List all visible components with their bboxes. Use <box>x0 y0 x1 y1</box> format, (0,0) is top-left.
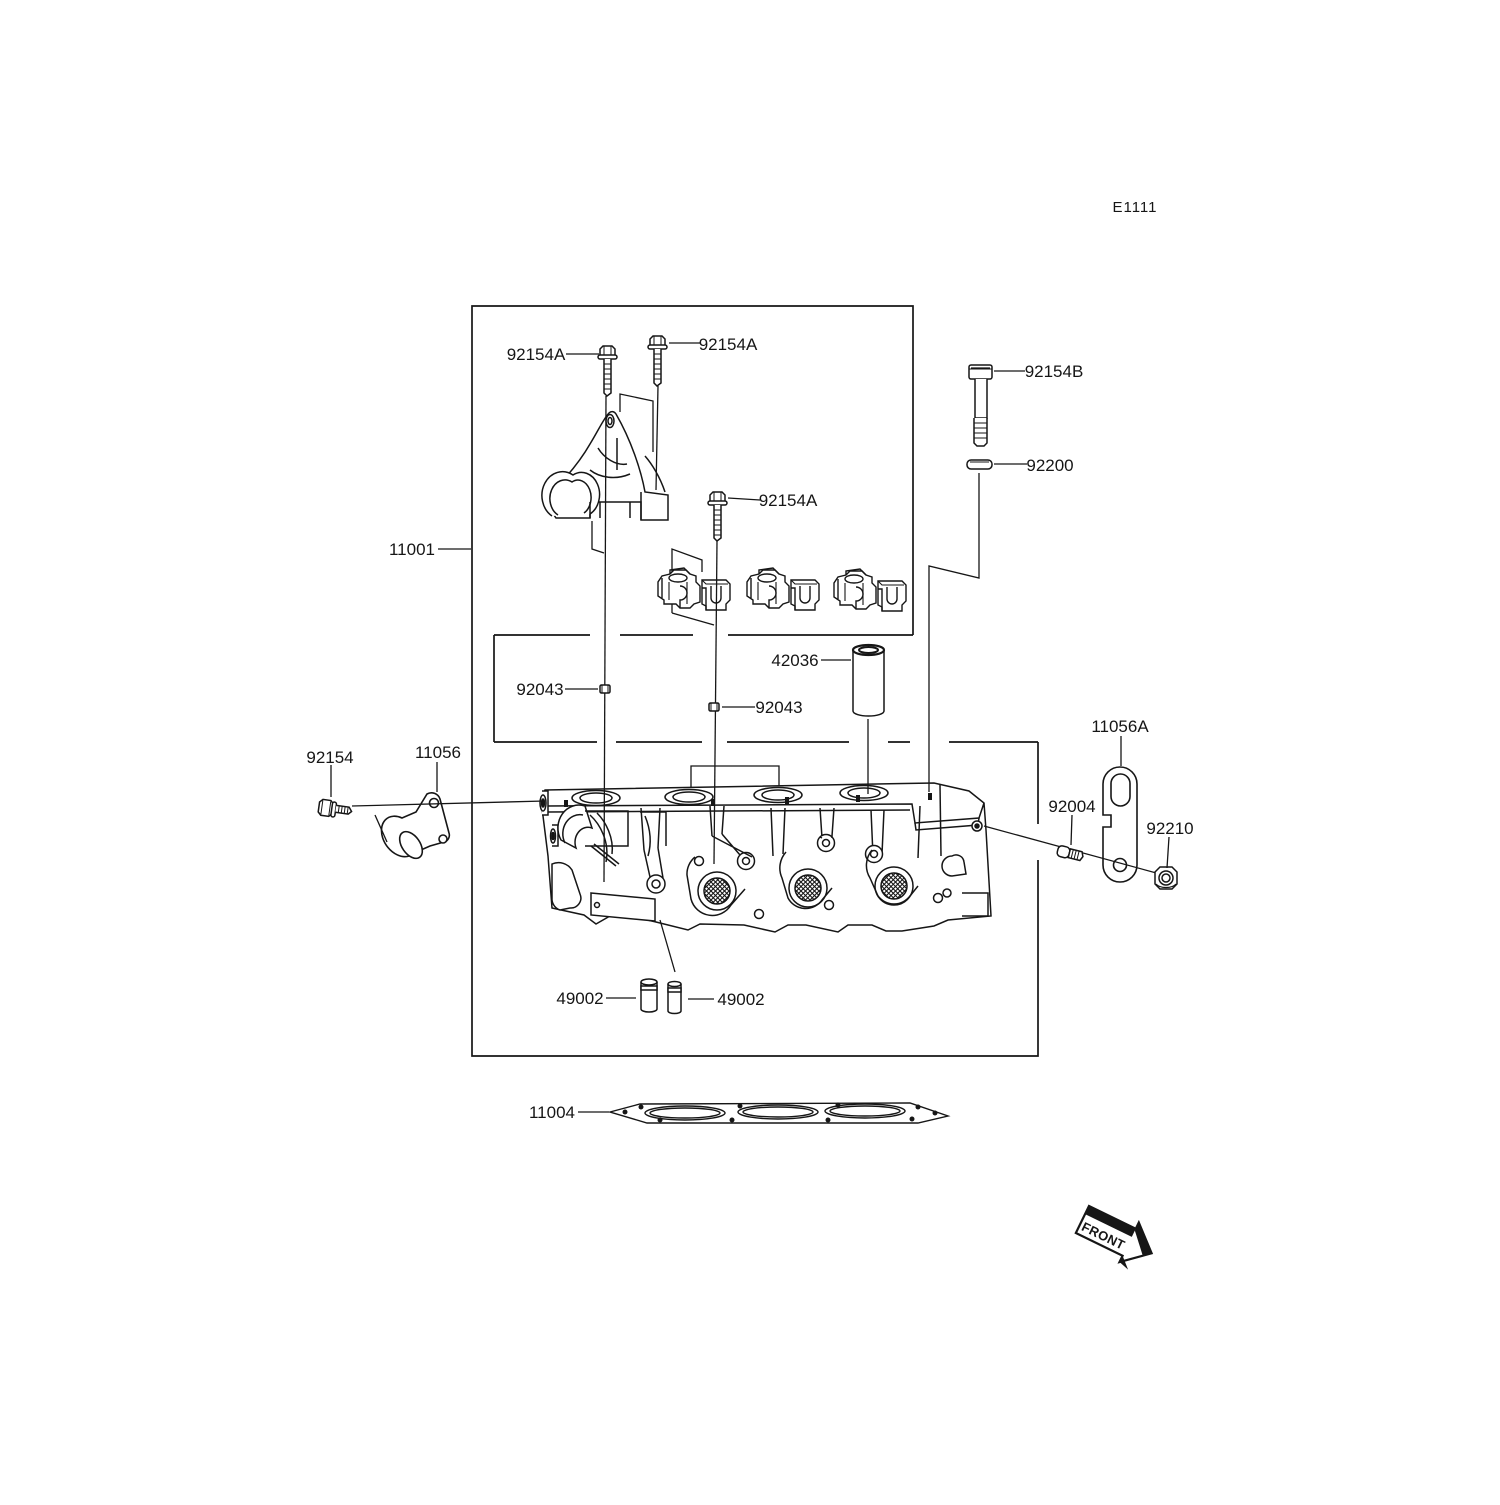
svg-text:E1111: E1111 <box>1112 199 1157 216</box>
svg-text:49002: 49002 <box>556 989 603 1008</box>
svg-text:92043: 92043 <box>755 698 802 717</box>
svg-text:92154A: 92154A <box>699 335 758 354</box>
svg-text:92154B: 92154B <box>1025 362 1084 381</box>
svg-text:11056: 11056 <box>415 743 461 762</box>
svg-text:92043: 92043 <box>516 680 563 699</box>
svg-text:42036: 42036 <box>771 651 818 670</box>
svg-text:92004: 92004 <box>1048 797 1095 816</box>
svg-text:92154A: 92154A <box>507 345 566 364</box>
svg-text:92154A: 92154A <box>759 491 818 510</box>
svg-text:11001: 11001 <box>389 540 435 559</box>
svg-text:92200: 92200 <box>1026 456 1073 475</box>
svg-text:92210: 92210 <box>1146 819 1193 838</box>
svg-text:49002: 49002 <box>717 990 764 1009</box>
svg-text:11056A: 11056A <box>1091 717 1149 736</box>
svg-text:92154: 92154 <box>306 748 353 767</box>
svg-text:11004: 11004 <box>529 1103 575 1122</box>
